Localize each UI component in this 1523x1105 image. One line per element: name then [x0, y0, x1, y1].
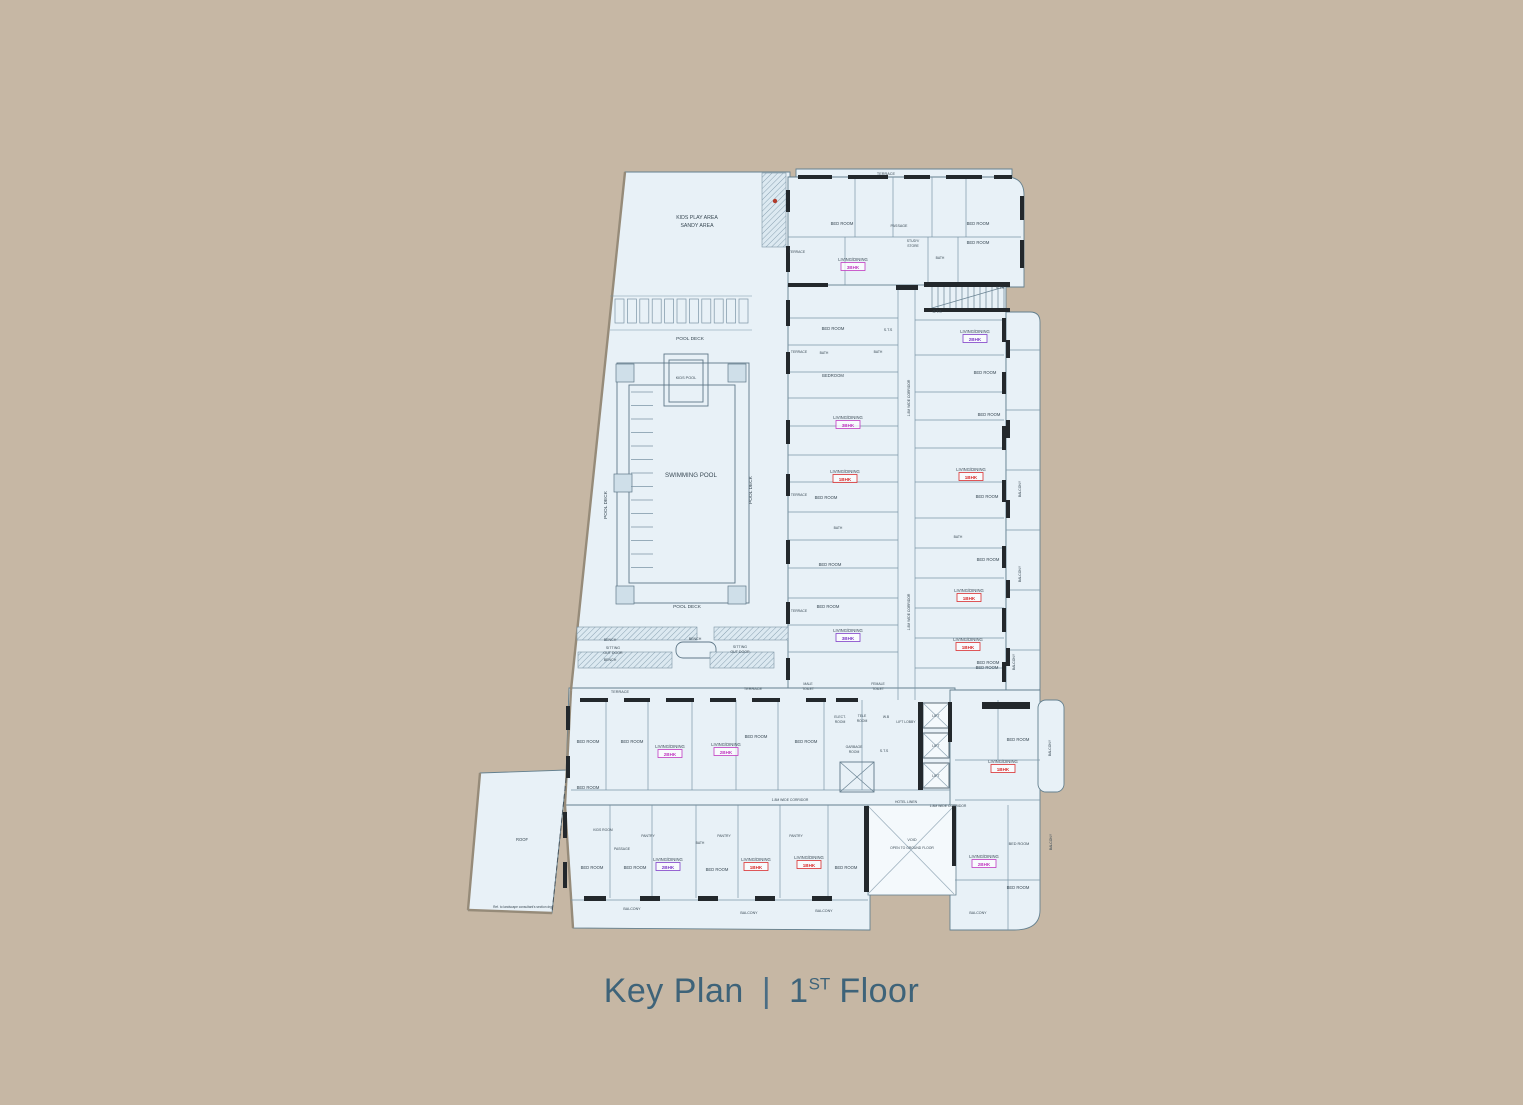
unit-type-badge: 1BHK — [962, 645, 975, 650]
wall-segment — [1006, 340, 1010, 358]
room-label: MALE — [803, 682, 813, 686]
room-label: TERRACE — [877, 172, 896, 176]
room-label: LIFT — [932, 744, 940, 748]
wall-segment — [786, 474, 790, 496]
room-label: LIVING/DINING — [960, 329, 990, 334]
unit-type-badge: 3BHK — [842, 423, 855, 428]
room-label: LIVING/DINING — [969, 854, 999, 859]
room-label: BALCONY — [815, 909, 833, 913]
room-label: BENCH — [604, 638, 617, 642]
room-label: LIVING/DINING — [956, 467, 986, 472]
room-label: TERRACE — [791, 493, 808, 497]
unit-type-badge: 2BHK — [978, 862, 991, 867]
room-label: LIVING/DINING — [711, 742, 741, 747]
room-label: BED ROOM — [1009, 842, 1030, 846]
room-label: SANDY AREA — [680, 223, 714, 229]
unit-type-badge: 3BHK — [842, 636, 855, 641]
room-label: LIVING/DINING — [953, 637, 983, 642]
room-label: LIVING/DINING — [988, 759, 1018, 764]
room-label: ELECT. — [834, 715, 846, 719]
wall-segment — [640, 896, 660, 901]
wall-segment — [982, 702, 1030, 709]
plan-block — [788, 177, 1024, 287]
wall-segment — [1006, 420, 1010, 438]
wall-segment — [666, 698, 694, 702]
room-label: 1.8M WIDE CORRIDOR — [930, 804, 967, 808]
room-label: KIDS PLAY AREA — [676, 215, 718, 221]
room-label: SWIMMING POOL — [665, 472, 717, 479]
wall-segment — [1006, 648, 1010, 666]
room-label: KIDS ROOM — [593, 828, 613, 832]
wall-segment — [755, 896, 775, 901]
room-label: OUT DOOR — [603, 651, 623, 655]
unit-type-badge: 2BHK — [664, 752, 677, 757]
room-label: BATH — [834, 526, 843, 530]
room-label: ROOM — [857, 719, 868, 723]
room-label: BED ROOM — [819, 562, 842, 567]
room-label: 1.8M WIDE CORRIDOR — [907, 593, 911, 630]
wall-segment — [1002, 372, 1006, 394]
room-label: TELE — [858, 714, 867, 718]
room-label: LIVING/DINING — [741, 857, 771, 862]
room-label: BALCONY — [1012, 653, 1016, 670]
room-label: S.T.S — [880, 749, 889, 753]
floor-plan: KIDS PLAY AREASANDY AREAPOOL DECKKIDS PO… — [0, 0, 1523, 1105]
wall-segment — [786, 190, 790, 212]
pool-pillar — [614, 474, 632, 492]
room-label: TOILET — [872, 687, 884, 691]
wall-segment — [1006, 500, 1010, 518]
wall-segment — [952, 806, 956, 866]
room-label: POOL DECK — [676, 336, 705, 342]
wall-segment — [946, 175, 982, 179]
wall-segment — [786, 540, 790, 564]
room-label: TERRACE — [744, 687, 763, 691]
wall-segment — [812, 896, 832, 901]
planter-hatch — [762, 173, 786, 247]
wall-segment — [1002, 480, 1006, 502]
wall-segment — [786, 300, 790, 326]
wall-segment — [864, 806, 869, 892]
room-label: BATH — [954, 535, 963, 539]
wall-segment — [710, 698, 736, 702]
room-label: BALCONY — [1018, 480, 1022, 497]
room-label: BALCONY — [969, 911, 987, 915]
wall-segment — [994, 175, 1012, 179]
room-label: PANTRY — [789, 834, 803, 838]
wall-segment — [918, 702, 923, 790]
wall-segment — [798, 175, 832, 179]
room-label: LIVING/DINING — [954, 588, 984, 593]
room-label: BALCONY — [1048, 739, 1052, 756]
wall-segment — [786, 658, 790, 680]
unit-type-badge: 1BHK — [803, 863, 816, 868]
room-label: BED ROOM — [977, 557, 1000, 562]
wall-segment — [563, 812, 567, 838]
room-label: BALCONY — [623, 907, 641, 911]
plan-block — [571, 172, 790, 690]
room-label: BED ROOM — [967, 221, 990, 226]
planter-hatch — [577, 627, 697, 640]
wall-segment — [836, 698, 858, 702]
room-label: GARBAGE — [846, 745, 864, 749]
room-label: TOILET — [802, 687, 814, 691]
wall-segment — [788, 283, 828, 287]
unit-type-badge: 1BHK — [839, 477, 852, 482]
wall-segment — [786, 352, 790, 374]
wall-segment — [1020, 240, 1024, 268]
room-label: BED ROOM — [976, 494, 999, 499]
unit-type-badge: 1BHK — [963, 596, 976, 601]
room-label: TERRACE — [789, 250, 806, 254]
planter-hatch — [714, 627, 788, 640]
room-label: OUT DOOR — [730, 650, 750, 654]
room-label: LIVING/DINING — [794, 855, 824, 860]
planter-hatch — [578, 652, 672, 668]
wall-segment — [1006, 580, 1010, 598]
title-key-plan: Key Plan — [604, 972, 744, 1010]
pool-pillar — [616, 364, 634, 382]
room-label: KIDS POOL — [676, 376, 696, 380]
title-separator: | — [762, 972, 771, 1010]
room-label: LIVING/DINING — [653, 857, 683, 862]
void-block — [868, 805, 956, 895]
room-label: W.B — [883, 715, 890, 719]
room-label: 1.8M WIDE CORRIDOR — [772, 798, 809, 802]
room-label: LIVING/DINING — [830, 469, 860, 474]
wall-segment — [566, 756, 570, 778]
wall-segment — [752, 698, 780, 702]
room-label: LIVING/DINING — [833, 415, 863, 420]
room-label: TERRACE — [791, 609, 808, 613]
plan-block — [565, 688, 955, 805]
wall-segment — [1002, 608, 1006, 632]
wall-segment — [806, 698, 826, 702]
room-label: ROOM — [849, 750, 860, 754]
plan-block — [1006, 312, 1040, 698]
room-label: VOID — [907, 838, 917, 842]
room-label: BED ROOM — [974, 370, 997, 375]
wall-segment — [786, 602, 790, 624]
room-label: LIVING/DINING — [655, 744, 685, 749]
room-label: STORE — [907, 244, 919, 248]
wall-segment — [1002, 318, 1006, 342]
room-label: BALCONY — [740, 911, 758, 915]
wall-segment — [624, 698, 650, 702]
room-label: BEDROOM — [822, 373, 844, 378]
room-label: BED ROOM — [817, 604, 840, 609]
room-label: LIVING/DINING — [833, 628, 863, 633]
room-label: BATH — [936, 256, 945, 260]
room-label: BED ROOM — [831, 221, 854, 226]
wall-segment — [580, 698, 608, 702]
floor-plan-svg: KIDS PLAY AREASANDY AREAPOOL DECKKIDS PO… — [0, 0, 1523, 1105]
room-label: LIFT — [932, 774, 940, 778]
room-label: BALCONY — [1049, 833, 1053, 850]
room-label: BED ROOM — [577, 785, 600, 790]
wall-segment — [904, 175, 930, 179]
wall-segment — [786, 420, 790, 444]
red-marker-dot — [773, 199, 777, 203]
wall-segment — [896, 285, 918, 290]
room-label: BENCH — [604, 658, 617, 662]
room-label: HOTEL LINEN — [895, 800, 918, 804]
room-label: BED ROOM — [577, 739, 600, 744]
room-label: BED ROOM — [835, 865, 858, 870]
room-label: BED ROOM — [745, 734, 768, 739]
wall-segment — [566, 706, 570, 730]
room-label: TERRACE — [611, 690, 630, 694]
room-label: BED ROOM — [624, 865, 647, 870]
room-label: BATH — [696, 841, 705, 845]
room-label: O.T.S — [933, 310, 943, 314]
room-label: BED ROOM — [976, 665, 999, 670]
room-label: Ref. to landscape consultant's section d… — [493, 905, 553, 909]
room-label: BED ROOM — [1007, 885, 1030, 890]
wall-segment — [584, 896, 606, 901]
unit-type-badge: 2BHK — [720, 750, 733, 755]
wall-segment — [1020, 196, 1024, 220]
room-label: POOL DECK — [748, 475, 754, 504]
room-label: POOL DECK — [673, 604, 702, 610]
room-label: ROOF — [516, 837, 529, 842]
pool-pillar — [728, 586, 746, 604]
wall-segment — [1002, 426, 1006, 450]
unit-type-badge: 1BHK — [965, 475, 978, 480]
room-label: SITTING — [606, 646, 620, 650]
room-label: S.T.S — [884, 328, 893, 332]
room-label: OPEN TO GROUND FLOOR — [890, 846, 934, 850]
room-label: BED ROOM — [795, 739, 818, 744]
room-label: SITTING — [733, 645, 747, 649]
title-floor: 1STFloor — [789, 972, 919, 1010]
room-label: BED ROOM — [967, 240, 990, 245]
room-label: TERRACE — [791, 350, 808, 354]
room-label: LIFT LOBBY — [896, 720, 916, 724]
unit-type-badge: 2BHK — [662, 865, 675, 870]
room-label: BED ROOM — [822, 326, 845, 331]
room-label: POOL DECK — [603, 490, 609, 519]
room-label: BED ROOM — [1007, 737, 1030, 742]
room-label: BATH — [874, 350, 883, 354]
room-label: BED ROOM — [978, 412, 1001, 417]
room-label: PANTRY — [641, 834, 655, 838]
unit-type-badge: 1BHK — [997, 767, 1010, 772]
room-label: BED ROOM — [815, 495, 838, 500]
room-label: PASSAGE — [614, 847, 631, 851]
wall-segment — [698, 896, 718, 901]
room-label: S.T.S — [996, 286, 1005, 290]
unit-type-badge: 3BHK — [847, 265, 860, 270]
room-label: PASSAGE — [891, 224, 909, 228]
room-label: FEMALE — [871, 682, 885, 686]
room-label: 1.8M WIDE CORRIDOR — [907, 379, 911, 416]
room-label: BED ROOM — [581, 865, 604, 870]
planter-hatch — [710, 652, 774, 668]
page-title: Key Plan|1STFloor — [0, 972, 1523, 1011]
wall-segment — [1002, 546, 1006, 568]
room-label: PANTRY — [717, 834, 731, 838]
wall-segment — [1002, 662, 1006, 682]
pool-pillar — [616, 586, 634, 604]
unit-type-badge: 2BHK — [969, 337, 982, 342]
room-label: BATH — [820, 351, 829, 355]
wall-segment — [948, 702, 952, 742]
room-label: BED ROOM — [706, 867, 729, 872]
brochure-page: KIDS PLAY AREASANDY AREAPOOL DECKKIDS PO… — [0, 0, 1523, 1105]
room-label: STUDY/ — [907, 239, 919, 243]
room-label: BENCH — [689, 637, 702, 641]
room-label: BALCONY — [1018, 565, 1022, 582]
pool-pillar — [728, 364, 746, 382]
room-label: LIFT — [932, 714, 940, 718]
wall-segment — [563, 862, 567, 888]
room-label: ROOM — [835, 720, 846, 724]
plan-block — [950, 690, 1040, 930]
room-label: BED ROOM — [621, 739, 644, 744]
unit-type-badge: 1BHK — [750, 865, 763, 870]
room-label: LIVING/DINING — [838, 257, 868, 262]
